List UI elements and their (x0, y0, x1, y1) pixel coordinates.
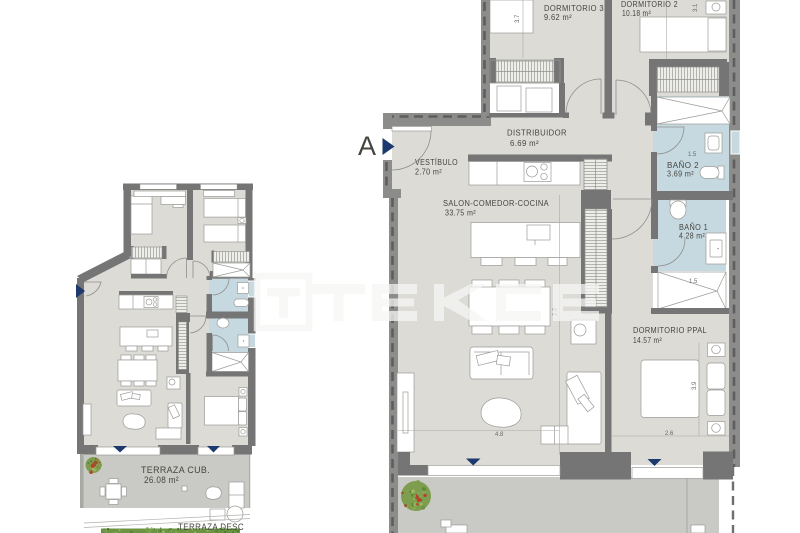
svg-text:26.08 m²: 26.08 m² (144, 475, 179, 486)
svg-text:10.18 m²: 10.18 m² (622, 9, 651, 18)
svg-text:DORMITORIO PPAL: DORMITORIO PPAL (633, 326, 707, 335)
svg-text:33.75 m²: 33.75 m² (445, 209, 476, 218)
svg-text:9.62 m²: 9.62 m² (544, 13, 572, 22)
svg-text:4.8: 4.8 (495, 432, 504, 438)
svg-text:DISTRIBUIDOR: DISTRIBUIDOR (507, 129, 567, 138)
svg-text:3.7: 3.7 (515, 14, 521, 23)
svg-text:3.9: 3.9 (692, 381, 698, 390)
svg-text:DORMITORIO 3: DORMITORIO 3 (544, 4, 604, 13)
svg-text:1.5: 1.5 (689, 279, 698, 285)
svg-text:14.57 m²: 14.57 m² (633, 336, 662, 345)
svg-text:6.69 m²: 6.69 m² (510, 139, 539, 148)
svg-text:4.28 m²: 4.28 m² (679, 232, 705, 241)
svg-text:A: A (358, 131, 376, 161)
svg-text:1.5: 1.5 (688, 152, 697, 158)
svg-text:3.69 m²: 3.69 m² (667, 170, 694, 179)
svg-text:DORMITORIO 2: DORMITORIO 2 (621, 0, 678, 9)
svg-text:3.1: 3.1 (693, 3, 699, 12)
svg-text:2.70 m²: 2.70 m² (415, 168, 442, 177)
svg-text:VESTÍBULO: VESTÍBULO (415, 158, 458, 167)
svg-text:TERRAZA DESC: TERRAZA DESC (178, 522, 244, 533)
svg-text:SALON-COMEDOR-COCINA: SALON-COMEDOR-COCINA (443, 199, 549, 208)
svg-text:2.6: 2.6 (665, 431, 674, 437)
